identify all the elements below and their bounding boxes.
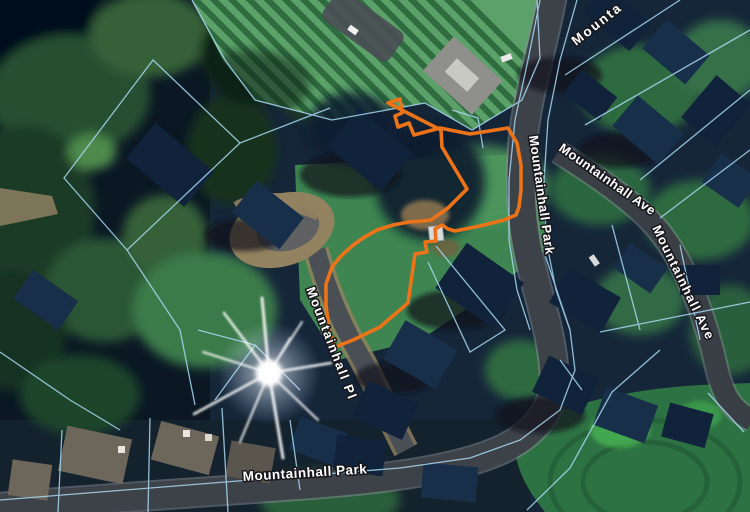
map-viewport[interactable]: Mountainhall Park Mounta Mountainhall Av… bbox=[0, 0, 750, 512]
satellite-map[interactable]: Mountainhall Park Mounta Mountainhall Av… bbox=[0, 0, 750, 512]
